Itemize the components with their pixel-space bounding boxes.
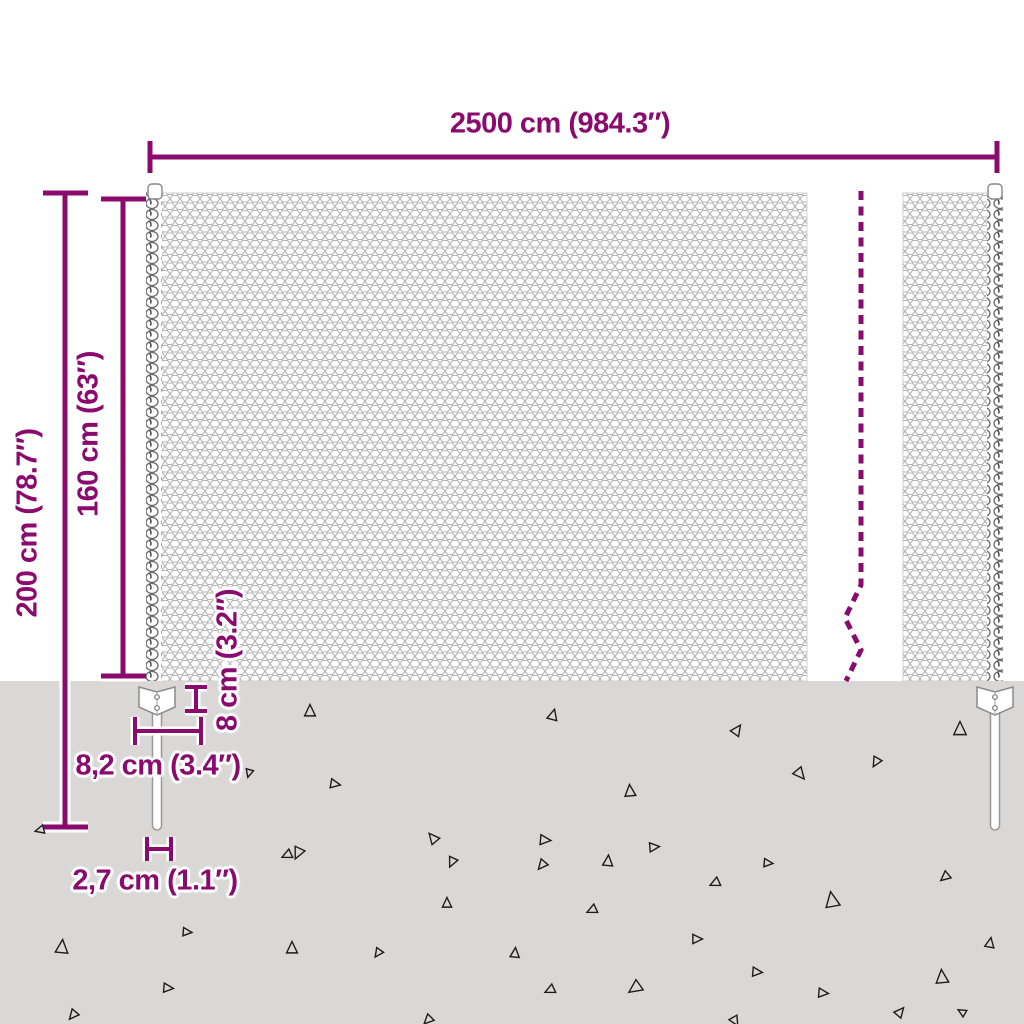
fence-panel-left [152, 193, 807, 681]
break-line [845, 191, 861, 681]
fence-coil-left [146, 184, 162, 681]
product-dimension-diagram: 2500 cm (984.3″) 200 cm (78.7″) 160 cm (… [0, 0, 1024, 1024]
anchor-width-label: 8,2 cm (3.4″) [75, 750, 240, 783]
anchor-depth-label: 8 cm (3.2″) [212, 589, 245, 731]
total-height-label: 200 cm (78.7″) [12, 428, 45, 617]
fence-panel-right [903, 193, 998, 681]
dim-total-width [150, 141, 997, 173]
stake-width-label: 2,7 cm (1.1″) [72, 865, 237, 898]
total-width-label: 2500 cm (984.3″) [450, 108, 670, 141]
fence-height-label: 160 cm (63″) [73, 351, 106, 517]
stake-right [991, 700, 1000, 830]
dim-fence-height [101, 199, 146, 676]
fence-coil-right [987, 184, 1003, 681]
